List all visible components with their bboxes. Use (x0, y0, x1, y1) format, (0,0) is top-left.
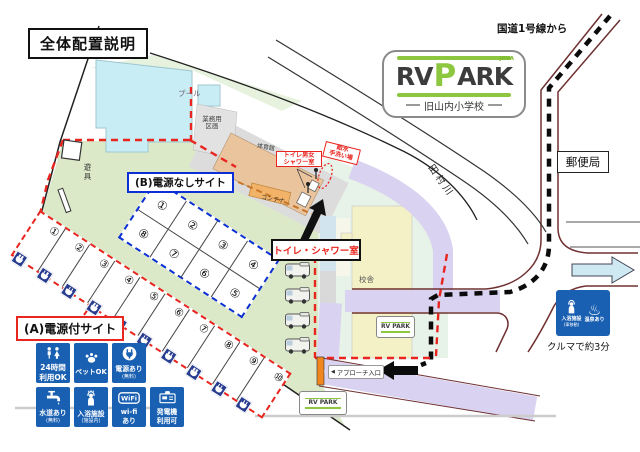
legend-label: wi-fi (121, 409, 137, 416)
legend-pets-tile: ペットOK (74, 343, 108, 383)
jrva-label: JRVA (500, 56, 514, 62)
site-b-label: (B)電源なしサイト (127, 172, 234, 193)
bath-facility-item: 入浴施設 (車移動) (561, 299, 581, 328)
rv-park-mini-logo: RV PARK (299, 391, 347, 415)
logo-rv: RV (396, 64, 433, 89)
gym-toilet-shower-label: トイレ男女 シャワー室 (276, 151, 322, 167)
legend-wifi-tile: WiFi wi-fi あり (112, 387, 146, 427)
legend-water-tile: 水道あり (無料) (36, 387, 70, 427)
subtitle-line-right (488, 104, 502, 106)
pool-annex (198, 85, 220, 106)
subtitle-line-left (406, 104, 420, 106)
logo-p: P (433, 61, 456, 92)
car-time-label: クルマで約3分 (547, 339, 610, 353)
legend-power-tile: 電源あり (無料) (112, 343, 146, 383)
page-title: 全体配置説明 (28, 28, 148, 59)
site-number: ⑩ (271, 369, 286, 385)
playground-label: 遊具 (82, 163, 93, 182)
rv-park-logo: JRVA RV P ARK 旧山内小学校 (382, 50, 526, 118)
left-triangle-icon: ◀ (331, 369, 335, 375)
rv-park-mini-logo: RV PARK (376, 316, 415, 338)
legend-label: 利用OK (39, 374, 66, 382)
onsen-item: ♨ 温泉あり (585, 303, 605, 324)
logo-ark: ARK (457, 64, 512, 89)
logo-wordmark: RV P ARK (396, 61, 512, 92)
legend-note: (無料) (46, 419, 60, 424)
mini-logo-bar (305, 407, 342, 409)
legend-bath-tile: 入浴施設 (施設内) (74, 387, 108, 427)
legend-label: 電源あり (115, 366, 142, 373)
mini-logo-text: RV PARK (308, 400, 337, 406)
mini-logo-text: RV PARK (381, 324, 410, 330)
legend-label: 水道あり (39, 410, 66, 417)
plug-icon (122, 346, 137, 365)
bath-person-icon (565, 299, 578, 318)
east-direction-arrow (572, 257, 634, 283)
legend-label: 24時間 (40, 364, 65, 372)
bath-facility-note: (車移動) (564, 323, 580, 328)
toilet-shower-label: トイレ・シャワー室 (271, 239, 361, 261)
hot-spring-icon: ♨ (588, 303, 601, 318)
legend-label: 利用可 (157, 418, 177, 425)
faucet-icon (45, 390, 62, 409)
restroom-icon (44, 344, 63, 363)
gym-toilet-line2: シャワー室 (277, 159, 321, 166)
approach-entrance-label: ◀ アプローチ入口 (328, 365, 384, 379)
route-from-label: 国道1号線から (497, 21, 567, 36)
legend-label: 発電機 (157, 409, 177, 416)
paw-icon (84, 349, 99, 368)
logo-subtitle: 旧山内小学校 (406, 98, 502, 113)
entrance-gate (317, 357, 324, 385)
post-office-label: 郵便局 (557, 151, 609, 173)
site-a-label: (A)電源付サイト (16, 316, 124, 341)
map-graphics (0, 0, 640, 452)
work-area-line2: 区画 (194, 123, 230, 130)
generator-icon (159, 389, 176, 408)
work-area-label: 業務用 区画 (194, 116, 230, 131)
pool (96, 60, 192, 152)
approach-entrance-text: アプローチ入口 (337, 368, 381, 377)
logo-school-name: 旧山内小学校 (424, 98, 484, 113)
rv-park-layout-map: ① ② ③ ④ ⑤ ⑥ ⑦ ⑧ ⑨ ⑩ ① ② ③ ④ ⑧ ⑦ ⑥ ⑤ 全体配置… (0, 0, 640, 452)
bath-icon (84, 390, 98, 410)
bath-facility-badge: 入浴施設 (車移動) ♨ 温泉あり (556, 290, 610, 336)
legend-label: あり (122, 418, 136, 425)
legend-24h-tile: 24時間 利用OK (36, 343, 70, 383)
onsen-text: 温泉あり (585, 318, 605, 324)
legend-note: (無料) (122, 375, 136, 380)
wifi-icon: WiFi (118, 389, 140, 408)
legend-generator-tile: 発電機 利用可 (150, 387, 184, 427)
legend-label: ペットOK (75, 369, 106, 376)
legend-note: (施設内) (82, 419, 101, 424)
logo-bar-bottom (397, 93, 512, 97)
mini-logo-bar (381, 331, 411, 333)
pool-label: プール (178, 88, 201, 99)
svg-text:WiFi: WiFi (121, 395, 137, 403)
school-label: 校舎 (359, 274, 374, 285)
